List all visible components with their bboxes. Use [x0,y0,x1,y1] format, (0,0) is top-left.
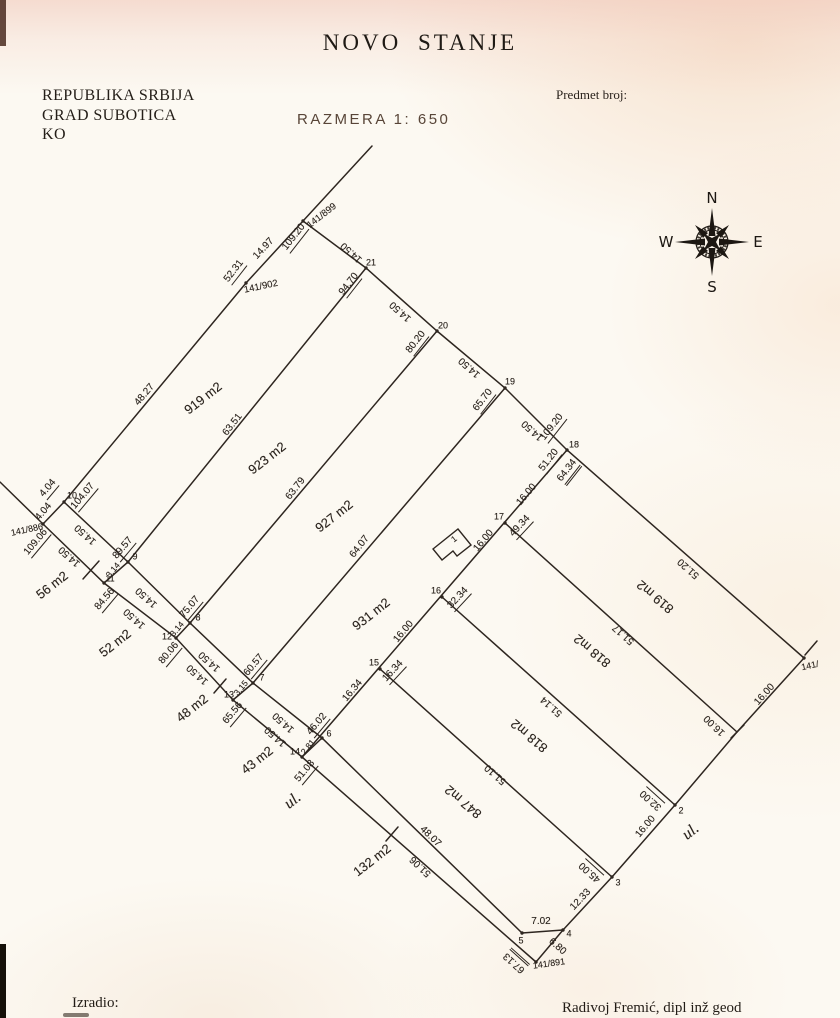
parcel-area-label: 931 m2 [350,596,392,633]
measurement-label: 104.07 [70,481,99,512]
point-number-label: 4 [566,930,571,939]
measurement-label: 3.14 [104,561,121,579]
measurement-label: 48.07 [418,825,443,850]
measurement-label: 49.34 [508,514,534,540]
survey-point [503,386,506,389]
point-number-label: 18 [569,441,579,450]
parcel-boundary-line [64,146,372,502]
point-number-label: 11 [105,575,114,584]
point-number-label: 17 [494,513,504,522]
point-number-label: 141/891 [532,957,565,970]
parcel-boundary-line [43,502,64,524]
measurement-label: 16.00 [703,713,728,738]
measurement-label: 2.81 [299,738,316,756]
point-number-label: 13 [224,691,234,700]
measurement-label: 14.97 [252,236,276,261]
cadastral-plan-drawing [0,0,840,1018]
case-number-label: Predmet broj: [556,87,627,103]
parcel-boundary-line [128,268,366,562]
parcel-boundary-line [302,738,322,757]
parcel-area-label: 43 m2 [239,744,275,776]
parcel-area-label: 818 m2 [508,717,550,755]
survey-point [300,755,303,758]
survey-point [673,803,676,806]
point-number-label: 20 [438,322,448,331]
measurement-label: 16.34 [381,659,407,685]
measurement-label: 84.56 [93,587,118,614]
parcel-area-label: 52 m2 [97,627,133,659]
point-number-label: 6 [326,730,331,739]
measurement-label: 109.20 [281,222,309,253]
measurement-label: 12.33 [569,887,593,912]
region-line-country: REPUBLIKA SRBIJA [42,86,195,106]
measurement-label: 16.00 [634,814,658,840]
measurement-label: 60.57 [242,653,267,680]
point-number-label: 8 [195,614,200,623]
measurement-label: 45.00 [578,858,605,884]
measurement-label: 64.07 [348,534,371,560]
parcel-area-label: 819 m2 [634,578,676,616]
measurement-label: 14.50 [388,299,413,323]
measurement-label: 16.00 [515,482,539,508]
point-number-label: 141/902 [243,279,279,295]
point-number-label: 19 [505,378,515,387]
point-number-label: 15 [369,659,379,668]
measurement-label: 32.34 [446,586,472,612]
point-number-label: 1 [450,534,459,544]
parcel-boundary-line [176,623,190,638]
boundary-tick-mark [805,641,817,655]
point-number-label: 141/ [800,660,819,672]
measurement-label: 109.06 [23,527,52,558]
point-number-label: 3 [615,879,620,888]
parcel-boundary-line [104,562,128,583]
surveyor-name: Radivoj Fremić, dipl inž geod [562,1000,742,1017]
compass-center-star [704,234,721,251]
parcel-area-label: 847 m2 [442,783,484,821]
prepared-by-label: Izradio: [72,995,119,1012]
parcel-area-label: 919 m2 [182,380,224,417]
measurement-label: 14.50 [73,522,98,546]
parcel-boundary-line [190,331,437,623]
measurement-label: 16.00 [472,528,496,554]
parcel-area-label: 818 m2 [571,632,613,670]
measurement-label: 75.07 [178,595,203,622]
scan-smudge [63,1013,89,1017]
scale-label: RAZMERA 1: 650 [297,111,450,128]
measurement-label: 63.51 [221,412,244,438]
measurement-label: 65.56 [221,701,246,728]
measurement-label: 14.50 [134,585,159,609]
compass-label-west: W [659,233,674,251]
point-number-label: 2 [678,807,683,816]
measurement-label: 32.00 [639,786,666,812]
measurement-label: 14.50 [457,355,482,379]
parcel-boundary-line [302,450,567,757]
parcel-boundary-line [380,669,612,877]
measurement-label: 14.50 [197,649,222,673]
survey-point [520,931,523,934]
street-label: ul. [680,821,703,844]
measurement-label: 48.27 [133,382,157,408]
measurement-label: 64.34 [556,458,582,486]
measurement-label: 80.20 [405,329,430,356]
point-number-label: 9 [132,553,137,562]
parcel-boundary-line [536,658,804,962]
measurement-label: 16.00 [753,682,777,707]
measurement-label: 6.80 [546,937,567,957]
measurement-label: 109.20 [539,412,567,443]
point-number-label: 16 [431,587,441,596]
parcel-boundary-line [64,502,522,933]
measurement-label: 67.13 [502,947,530,974]
measurement-label: 52.31 [223,258,248,285]
parcel-boundary-line [522,930,563,933]
survey-point [244,281,247,284]
boundary-tick-mark [214,679,226,693]
survey-point [174,636,177,639]
measurement-label: 46.02 [305,712,330,739]
measurement-label: 94.70 [338,271,363,298]
parcel-area-label: 923 m2 [246,440,288,477]
compass-label-south: S [707,278,717,296]
point-number-label: 12 [162,633,172,642]
survey-point [364,266,367,269]
scanned-cadastral-sheet: NOVO STANJE REPUBLIKA SRBIJA GRAD SUBOTI… [0,0,840,1018]
measurement-label: 51.20 [676,556,701,580]
measurement-label: 51.10 [483,762,508,786]
measurement-label: 51.08 [293,759,318,786]
compass-rose: N S W E [657,192,767,296]
parcel-area-label: 48 m2 [174,692,210,724]
parcel-boundary-line [253,388,505,683]
measurement-label: 14.50 [185,662,210,686]
region-line-ko: KO [42,125,195,145]
boundary-tick-mark [731,725,744,738]
survey-point [301,219,304,222]
survey-point [251,681,254,684]
survey-point [440,595,443,598]
compass-label-north: N [706,192,717,207]
measurement-label: 4.04 [38,478,60,501]
boundary-tick-mark [83,561,99,579]
survey-point [188,621,191,624]
measurement-label: 14.50 [122,606,147,630]
survey-point [435,329,438,332]
point-number-label: 10 [67,492,77,501]
region-block: REPUBLIKA SRBIJA GRAD SUBOTICA KO [42,86,195,145]
measurement-label: 3.15 [232,679,249,697]
building-footprint [433,529,471,560]
survey-point [62,500,65,503]
page-title: NOVO STANJE [0,30,840,56]
survey-point [231,698,234,701]
parcel-boundary-line [505,523,737,732]
point-number-label: 14 [290,748,300,757]
compass-label-east: E [753,233,762,251]
measurement-label: 63.79 [284,476,307,502]
parcel-boundary-line [442,597,675,805]
measurement-label: 14.50 [271,710,296,734]
survey-point [126,560,129,563]
measurement-label: 80.06 [157,641,182,668]
point-number-label: 21 [366,259,376,268]
survey-point [561,928,564,931]
point-number-label: 7 [259,674,264,683]
measurement-label: 89.57 [111,536,136,563]
point-number-label: 141/886 [10,522,44,538]
parcel-area-label: 132 m2 [351,842,393,879]
measurement-label: 51.06 [409,854,434,879]
measurement-label: 51.14 [539,694,564,718]
measurement-label: 65.70 [472,387,497,414]
measurement-label: 7.02 [531,917,550,927]
survey-point [802,656,805,659]
street-label: ul. [282,790,305,813]
survey-point [565,448,568,451]
measurement-label: 16.34 [341,678,365,704]
compass-spike-north [709,208,716,236]
survey-point [534,960,537,963]
point-number-label: 5 [518,937,523,946]
plan-label-layer: 141/899109.2014.9752.31141/90214.502194.… [0,0,840,1018]
parcel-area-label: 56 m2 [34,569,70,601]
boundary-tick-mark [386,827,398,841]
survey-point [41,522,44,525]
scan-edge-artifact-bottom-left [0,944,6,1018]
measurement-label: 14.50 [339,240,364,264]
measurement-label: 14.50 [57,544,82,568]
measurement-label: 16.00 [392,619,416,645]
parcel-area-label: 927 m2 [313,498,355,535]
measurement-label: 4.04 [34,501,54,522]
survey-point [320,736,323,739]
survey-point [503,521,506,524]
parcel-boundary-line [0,482,536,962]
compass-spike-south [709,248,716,276]
measurement-label: 14.50 [520,418,545,442]
measurement-label: 51.17 [611,622,636,646]
survey-point [610,875,613,878]
measurement-label: 3.14 [168,620,185,638]
parcel-boundary-line [233,683,253,700]
survey-point [102,581,105,584]
survey-point [378,667,381,670]
measurement-label: 51.20 [538,447,563,474]
point-number-label: 141/899 [306,202,339,231]
measurement-label: 14.50 [263,724,288,748]
region-line-city: GRAD SUBOTICA [42,106,195,126]
